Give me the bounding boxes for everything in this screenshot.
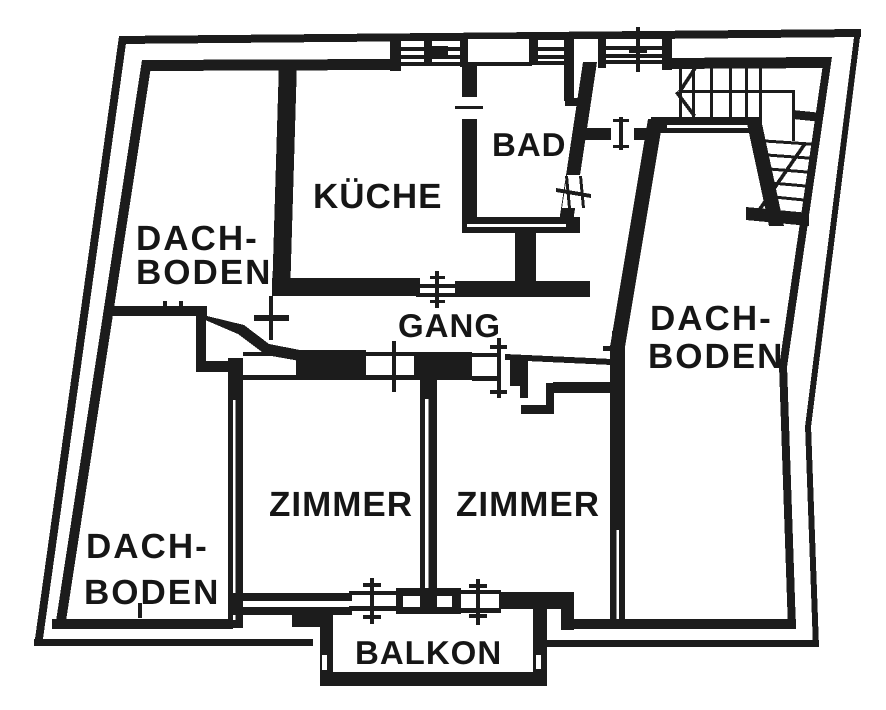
svg-text:BODEN: BODEN [136,253,272,292]
svg-text:ZIMMER: ZIMMER [456,485,600,524]
svg-text:DACH-: DACH- [86,527,209,566]
svg-text:BODEN: BODEN [648,337,784,376]
svg-text:BAD: BAD [492,126,567,163]
svg-text:KÜCHE: KÜCHE [313,177,442,216]
svg-text:BALKON: BALKON [355,634,502,671]
svg-text:DACH-: DACH- [650,299,773,338]
svg-text:GANG: GANG [398,307,501,344]
svg-text:BODEN: BODEN [84,573,220,612]
svg-text:ZIMMER: ZIMMER [269,485,413,524]
